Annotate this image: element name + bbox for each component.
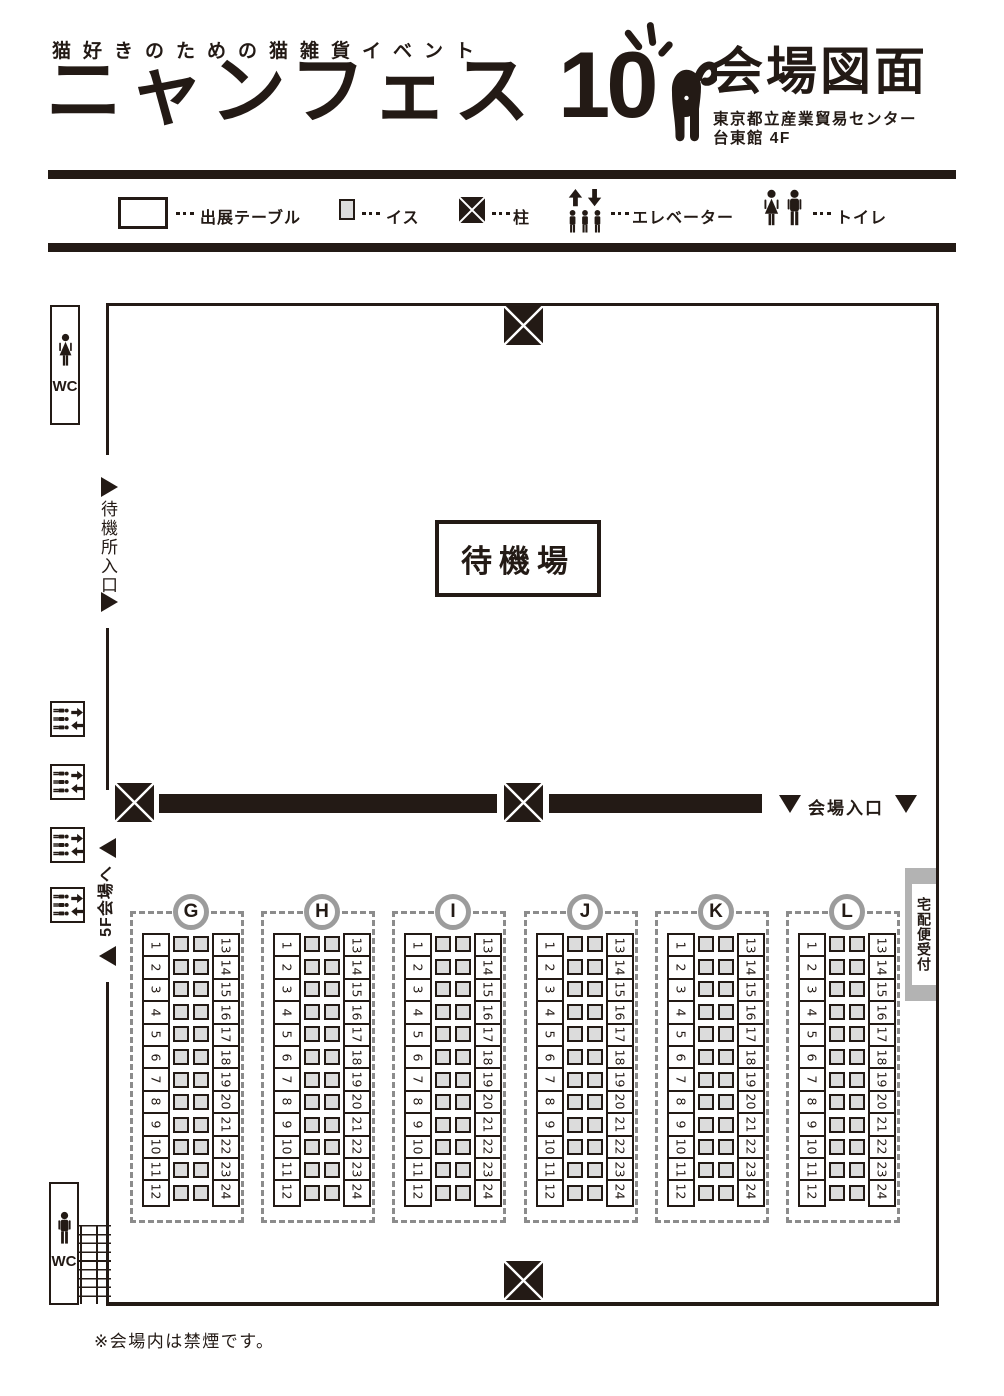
table-H-5: 5 bbox=[275, 1025, 299, 1047]
table-G-13: 13 bbox=[214, 935, 238, 957]
chair bbox=[567, 981, 583, 997]
table-J-3: 3 bbox=[538, 980, 562, 1002]
arrow-down-icon bbox=[779, 795, 801, 813]
table-J-9: 9 bbox=[538, 1114, 562, 1136]
chair bbox=[587, 1162, 603, 1178]
table-L-14: 14 bbox=[870, 957, 894, 979]
table-K-11: 11 bbox=[669, 1159, 693, 1181]
table-J-7: 7 bbox=[538, 1069, 562, 1091]
table-G-9: 9 bbox=[144, 1114, 168, 1136]
chair bbox=[718, 1139, 734, 1155]
elevator-icon bbox=[565, 189, 605, 233]
chair bbox=[173, 1094, 189, 1110]
table-I-21: 21 bbox=[476, 1114, 500, 1136]
chair bbox=[718, 1072, 734, 1088]
table-column: 131415161718192021222324 bbox=[737, 933, 765, 1207]
table-G-14: 14 bbox=[214, 957, 238, 979]
table-I-13: 13 bbox=[476, 935, 500, 957]
pillar bbox=[504, 783, 543, 822]
table-I-12: 12 bbox=[406, 1181, 430, 1201]
table-column: 123456789101112 bbox=[142, 933, 170, 1207]
table-L-20: 20 bbox=[870, 1092, 894, 1114]
table-column: 131415161718192021222324 bbox=[868, 933, 896, 1207]
table-K-18: 18 bbox=[739, 1047, 763, 1069]
chair bbox=[567, 1004, 583, 1020]
chair bbox=[193, 1139, 209, 1155]
chair bbox=[698, 1072, 714, 1088]
table-column: 131415161718192021222324 bbox=[474, 933, 502, 1207]
to-5f-label: 5F会場へ bbox=[92, 865, 116, 937]
chair bbox=[304, 1139, 320, 1155]
table-H-23: 23 bbox=[345, 1159, 369, 1181]
table-I-18: 18 bbox=[476, 1047, 500, 1069]
chair bbox=[567, 1117, 583, 1133]
table-I-23: 23 bbox=[476, 1159, 500, 1181]
chair bbox=[587, 959, 603, 975]
table-L-2: 2 bbox=[800, 957, 824, 979]
chair bbox=[698, 1094, 714, 1110]
chair bbox=[587, 936, 603, 952]
map-title: 会場図面 bbox=[712, 46, 928, 97]
table-L-23: 23 bbox=[870, 1159, 894, 1181]
chair bbox=[718, 1049, 734, 1065]
chair bbox=[304, 936, 320, 952]
chair bbox=[849, 1139, 865, 1155]
chair bbox=[324, 1049, 340, 1065]
block-label-H: H bbox=[304, 894, 340, 930]
man-icon bbox=[56, 1211, 73, 1249]
table-I-9: 9 bbox=[406, 1114, 430, 1136]
table-column: 123456789101112 bbox=[667, 933, 695, 1207]
table-column: 131415161718192021222324 bbox=[343, 933, 371, 1207]
table-K-22: 22 bbox=[739, 1137, 763, 1159]
chair bbox=[173, 1117, 189, 1133]
chair bbox=[304, 1072, 320, 1088]
chair bbox=[435, 959, 451, 975]
chair-column bbox=[435, 933, 451, 1207]
chair bbox=[173, 1049, 189, 1065]
table-K-9: 9 bbox=[669, 1114, 693, 1136]
chair-swatch bbox=[339, 199, 355, 220]
chair bbox=[718, 959, 734, 975]
chair-column bbox=[193, 933, 209, 1207]
chair bbox=[193, 1117, 209, 1133]
table-L-1: 1 bbox=[800, 935, 824, 957]
table-L-17: 17 bbox=[870, 1025, 894, 1047]
cat-silhouette-icon bbox=[659, 46, 717, 146]
table-K-17: 17 bbox=[739, 1025, 763, 1047]
table-J-16: 16 bbox=[608, 1002, 632, 1024]
table-L-6: 6 bbox=[800, 1047, 824, 1069]
chair bbox=[567, 959, 583, 975]
chair bbox=[567, 936, 583, 952]
chair bbox=[849, 1117, 865, 1133]
table-J-4: 4 bbox=[538, 1002, 562, 1024]
exhibit-block-K: K123456789101112131415161718192021222324 bbox=[655, 911, 769, 1223]
legend-dots bbox=[492, 212, 510, 215]
chair bbox=[829, 1094, 845, 1110]
table-I-20: 20 bbox=[476, 1092, 500, 1114]
table-J-15: 15 bbox=[608, 980, 632, 1002]
table-L-11: 11 bbox=[800, 1159, 824, 1181]
legend-label-chair: イス bbox=[386, 204, 420, 228]
table-G-12: 12 bbox=[144, 1181, 168, 1201]
chair bbox=[304, 1026, 320, 1042]
chair bbox=[455, 1117, 471, 1133]
table-I-22: 22 bbox=[476, 1137, 500, 1159]
chair bbox=[304, 981, 320, 997]
chair bbox=[304, 1185, 320, 1201]
elevator bbox=[50, 827, 85, 863]
table-J-24: 24 bbox=[608, 1181, 632, 1201]
wc-label-bottom: WC bbox=[49, 1253, 79, 1270]
chair bbox=[567, 1049, 583, 1065]
chair bbox=[567, 1026, 583, 1042]
table-H-13: 13 bbox=[345, 935, 369, 957]
wall-left-segment bbox=[106, 303, 109, 455]
table-column: 131415161718192021222324 bbox=[606, 933, 634, 1207]
block-label-G: G bbox=[173, 894, 209, 930]
chair bbox=[587, 1004, 603, 1020]
table-L-9: 9 bbox=[800, 1114, 824, 1136]
chair bbox=[455, 1049, 471, 1065]
chair bbox=[849, 1026, 865, 1042]
chair bbox=[304, 1049, 320, 1065]
chair bbox=[829, 981, 845, 997]
table-I-10: 10 bbox=[406, 1137, 430, 1159]
table-swatch bbox=[118, 197, 168, 229]
elevator bbox=[50, 701, 85, 737]
chair bbox=[849, 936, 865, 952]
chair bbox=[435, 1072, 451, 1088]
delivery-reception-inner: 宅配便受付 bbox=[912, 884, 936, 985]
table-column: 123456789101112 bbox=[273, 933, 301, 1207]
chair-column bbox=[173, 933, 189, 1207]
chair bbox=[587, 1072, 603, 1088]
table-H-15: 15 bbox=[345, 980, 369, 1002]
table-I-14: 14 bbox=[476, 957, 500, 979]
chair bbox=[698, 981, 714, 997]
chair bbox=[193, 981, 209, 997]
table-J-18: 18 bbox=[608, 1047, 632, 1069]
chair bbox=[435, 981, 451, 997]
chair bbox=[324, 1026, 340, 1042]
chair bbox=[698, 1049, 714, 1065]
floor-plan-page: 猫好きのための猫雑貨イベント ニャンフェス 10 会場図面 東京都立産業貿易セン… bbox=[0, 0, 1004, 1396]
table-H-8: 8 bbox=[275, 1092, 299, 1114]
chair bbox=[435, 1004, 451, 1020]
chair bbox=[435, 1049, 451, 1065]
chair bbox=[435, 1026, 451, 1042]
table-K-16: 16 bbox=[739, 1002, 763, 1024]
table-column: 131415161718192021222324 bbox=[212, 933, 240, 1207]
table-H-17: 17 bbox=[345, 1025, 369, 1047]
man-icon bbox=[785, 189, 804, 231]
table-K-4: 4 bbox=[669, 1002, 693, 1024]
chair bbox=[829, 1004, 845, 1020]
table-column: 123456789101112 bbox=[536, 933, 564, 1207]
chair bbox=[324, 959, 340, 975]
table-K-1: 1 bbox=[669, 935, 693, 957]
table-J-8: 8 bbox=[538, 1092, 562, 1114]
chair bbox=[829, 936, 845, 952]
table-K-24: 24 bbox=[739, 1181, 763, 1201]
table-G-5: 5 bbox=[144, 1025, 168, 1047]
chair bbox=[567, 1094, 583, 1110]
waiting-entrance-label: 待機所入口 bbox=[95, 500, 120, 595]
table-L-21: 21 bbox=[870, 1114, 894, 1136]
chair bbox=[718, 1094, 734, 1110]
table-H-24: 24 bbox=[345, 1181, 369, 1201]
table-K-2: 2 bbox=[669, 957, 693, 979]
table-L-15: 15 bbox=[870, 980, 894, 1002]
table-K-13: 13 bbox=[739, 935, 763, 957]
chair bbox=[829, 1072, 845, 1088]
table-J-12: 12 bbox=[538, 1181, 562, 1201]
table-L-5: 5 bbox=[800, 1025, 824, 1047]
chair-column bbox=[587, 933, 603, 1207]
chair bbox=[829, 1162, 845, 1178]
chair bbox=[718, 1162, 734, 1178]
table-G-22: 22 bbox=[214, 1137, 238, 1159]
chair-column bbox=[718, 933, 734, 1207]
table-I-5: 5 bbox=[406, 1025, 430, 1047]
chair bbox=[829, 1185, 845, 1201]
table-L-18: 18 bbox=[870, 1047, 894, 1069]
table-J-14: 14 bbox=[608, 957, 632, 979]
chair bbox=[698, 1004, 714, 1020]
chair bbox=[455, 1026, 471, 1042]
table-I-15: 15 bbox=[476, 980, 500, 1002]
chair-column bbox=[567, 933, 583, 1207]
chair bbox=[455, 1094, 471, 1110]
chair bbox=[193, 936, 209, 952]
legend-dots bbox=[611, 212, 629, 215]
wall-right bbox=[936, 303, 939, 1306]
chair bbox=[435, 1094, 451, 1110]
table-J-6: 6 bbox=[538, 1047, 562, 1069]
table-J-5: 5 bbox=[538, 1025, 562, 1047]
chair bbox=[435, 1185, 451, 1201]
chair bbox=[435, 1162, 451, 1178]
table-H-14: 14 bbox=[345, 957, 369, 979]
table-I-4: 4 bbox=[406, 1002, 430, 1024]
table-K-19: 19 bbox=[739, 1069, 763, 1091]
to-5f-label-wrap: 5F会場へ bbox=[93, 855, 115, 947]
chair-column bbox=[698, 933, 714, 1207]
chair bbox=[173, 1004, 189, 1020]
chair bbox=[829, 1026, 845, 1042]
table-I-17: 17 bbox=[476, 1025, 500, 1047]
table-J-13: 13 bbox=[608, 935, 632, 957]
legend-dots bbox=[362, 212, 380, 215]
chair bbox=[304, 1004, 320, 1020]
chair bbox=[173, 1026, 189, 1042]
table-H-10: 10 bbox=[275, 1137, 299, 1159]
chair bbox=[455, 936, 471, 952]
chair bbox=[173, 1072, 189, 1088]
table-L-7: 7 bbox=[800, 1069, 824, 1091]
legend-label-pillar: 柱 bbox=[513, 204, 530, 228]
legend-label-toilet: トイレ bbox=[836, 204, 887, 228]
chair bbox=[567, 1185, 583, 1201]
table-L-12: 12 bbox=[800, 1181, 824, 1201]
chair bbox=[173, 1162, 189, 1178]
table-J-22: 22 bbox=[608, 1137, 632, 1159]
chair bbox=[173, 1185, 189, 1201]
pillar bbox=[115, 783, 154, 822]
table-I-8: 8 bbox=[406, 1092, 430, 1114]
elevator bbox=[50, 764, 85, 800]
chair bbox=[587, 1139, 603, 1155]
wall-bottom bbox=[106, 1302, 939, 1306]
table-J-11: 11 bbox=[538, 1159, 562, 1181]
table-J-10: 10 bbox=[538, 1137, 562, 1159]
divider-top bbox=[48, 170, 956, 179]
chair bbox=[698, 1117, 714, 1133]
chair bbox=[587, 1049, 603, 1065]
exhibit-block-I: I123456789101112131415161718192021222324 bbox=[392, 911, 506, 1223]
table-G-23: 23 bbox=[214, 1159, 238, 1181]
table-G-7: 7 bbox=[144, 1069, 168, 1091]
chair bbox=[435, 1139, 451, 1155]
chair bbox=[849, 1185, 865, 1201]
table-K-8: 8 bbox=[669, 1092, 693, 1114]
table-K-10: 10 bbox=[669, 1137, 693, 1159]
pillar-swatch bbox=[459, 197, 485, 223]
table-K-20: 20 bbox=[739, 1092, 763, 1114]
table-H-7: 7 bbox=[275, 1069, 299, 1091]
table-I-7: 7 bbox=[406, 1069, 430, 1091]
table-J-21: 21 bbox=[608, 1114, 632, 1136]
chair bbox=[193, 959, 209, 975]
table-L-24: 24 bbox=[870, 1181, 894, 1201]
chair-column bbox=[324, 933, 340, 1207]
table-G-19: 19 bbox=[214, 1069, 238, 1091]
exhibit-block-H: H123456789101112131415161718192021222324 bbox=[261, 911, 375, 1223]
chair bbox=[173, 959, 189, 975]
table-K-14: 14 bbox=[739, 957, 763, 979]
wall-left-segment bbox=[106, 628, 109, 790]
venue-floor: 台東館 4F bbox=[713, 126, 791, 148]
table-G-24: 24 bbox=[214, 1181, 238, 1201]
table-K-5: 5 bbox=[669, 1025, 693, 1047]
chair bbox=[193, 1026, 209, 1042]
chair bbox=[587, 981, 603, 997]
table-column: 123456789101112 bbox=[404, 933, 432, 1207]
chair bbox=[567, 1072, 583, 1088]
table-L-4: 4 bbox=[800, 1002, 824, 1024]
table-G-8: 8 bbox=[144, 1092, 168, 1114]
table-G-15: 15 bbox=[214, 980, 238, 1002]
table-H-21: 21 bbox=[345, 1114, 369, 1136]
chair bbox=[324, 1094, 340, 1110]
table-K-6: 6 bbox=[669, 1047, 693, 1069]
table-K-12: 12 bbox=[669, 1181, 693, 1201]
chair bbox=[324, 1185, 340, 1201]
chair bbox=[455, 1004, 471, 1020]
table-L-16: 16 bbox=[870, 1002, 894, 1024]
legend-label-elevator: エレベーター bbox=[632, 204, 734, 228]
table-H-20: 20 bbox=[345, 1092, 369, 1114]
table-G-20: 20 bbox=[214, 1092, 238, 1114]
chair bbox=[718, 981, 734, 997]
arrow-left-icon bbox=[99, 946, 116, 966]
stair-rail bbox=[96, 1225, 98, 1304]
legend-dots bbox=[176, 212, 194, 215]
partition-bar bbox=[549, 794, 762, 813]
chair bbox=[304, 959, 320, 975]
table-I-2: 2 bbox=[406, 957, 430, 979]
table-G-16: 16 bbox=[214, 1002, 238, 1024]
divider-bottom bbox=[48, 243, 956, 252]
chair bbox=[718, 1117, 734, 1133]
chair bbox=[193, 1049, 209, 1065]
chair bbox=[455, 959, 471, 975]
chair bbox=[718, 1026, 734, 1042]
chair bbox=[849, 981, 865, 997]
block-label-I: I bbox=[435, 894, 471, 930]
table-column: 123456789101112 bbox=[798, 933, 826, 1207]
table-J-1: 1 bbox=[538, 935, 562, 957]
table-L-19: 19 bbox=[870, 1069, 894, 1091]
table-J-20: 20 bbox=[608, 1092, 632, 1114]
chair bbox=[304, 1162, 320, 1178]
chair bbox=[718, 1185, 734, 1201]
chair bbox=[324, 1004, 340, 1020]
table-H-4: 4 bbox=[275, 1002, 299, 1024]
table-G-11: 11 bbox=[144, 1159, 168, 1181]
table-G-10: 10 bbox=[144, 1137, 168, 1159]
table-H-22: 22 bbox=[345, 1137, 369, 1159]
hall-entrance-label: 会場入口 bbox=[808, 794, 884, 819]
table-I-6: 6 bbox=[406, 1047, 430, 1069]
exhibit-block-G: G123456789101112131415161718192021222324 bbox=[130, 911, 244, 1223]
chair bbox=[698, 1026, 714, 1042]
table-L-8: 8 bbox=[800, 1092, 824, 1114]
table-I-16: 16 bbox=[476, 1002, 500, 1024]
table-H-11: 11 bbox=[275, 1159, 299, 1181]
chair bbox=[304, 1117, 320, 1133]
chair bbox=[718, 936, 734, 952]
chair bbox=[849, 1162, 865, 1178]
table-I-19: 19 bbox=[476, 1069, 500, 1091]
table-G-6: 6 bbox=[144, 1047, 168, 1069]
table-H-18: 18 bbox=[345, 1047, 369, 1069]
delivery-reception: 宅配便受付 bbox=[905, 868, 936, 1001]
chair bbox=[567, 1162, 583, 1178]
chair bbox=[587, 1026, 603, 1042]
chair bbox=[849, 959, 865, 975]
chair bbox=[829, 1139, 845, 1155]
chair bbox=[829, 1117, 845, 1133]
table-H-9: 9 bbox=[275, 1114, 299, 1136]
table-L-10: 10 bbox=[800, 1137, 824, 1159]
chair bbox=[698, 959, 714, 975]
table-H-19: 19 bbox=[345, 1069, 369, 1091]
chair bbox=[173, 981, 189, 997]
chair bbox=[587, 1117, 603, 1133]
table-H-3: 3 bbox=[275, 980, 299, 1002]
stair-rail bbox=[80, 1225, 82, 1304]
partition-bar bbox=[159, 794, 497, 813]
legend-dots bbox=[813, 212, 831, 215]
chair bbox=[324, 1162, 340, 1178]
chair bbox=[849, 1004, 865, 1020]
chair bbox=[455, 1185, 471, 1201]
table-H-2: 2 bbox=[275, 957, 299, 979]
chair-column bbox=[304, 933, 320, 1207]
